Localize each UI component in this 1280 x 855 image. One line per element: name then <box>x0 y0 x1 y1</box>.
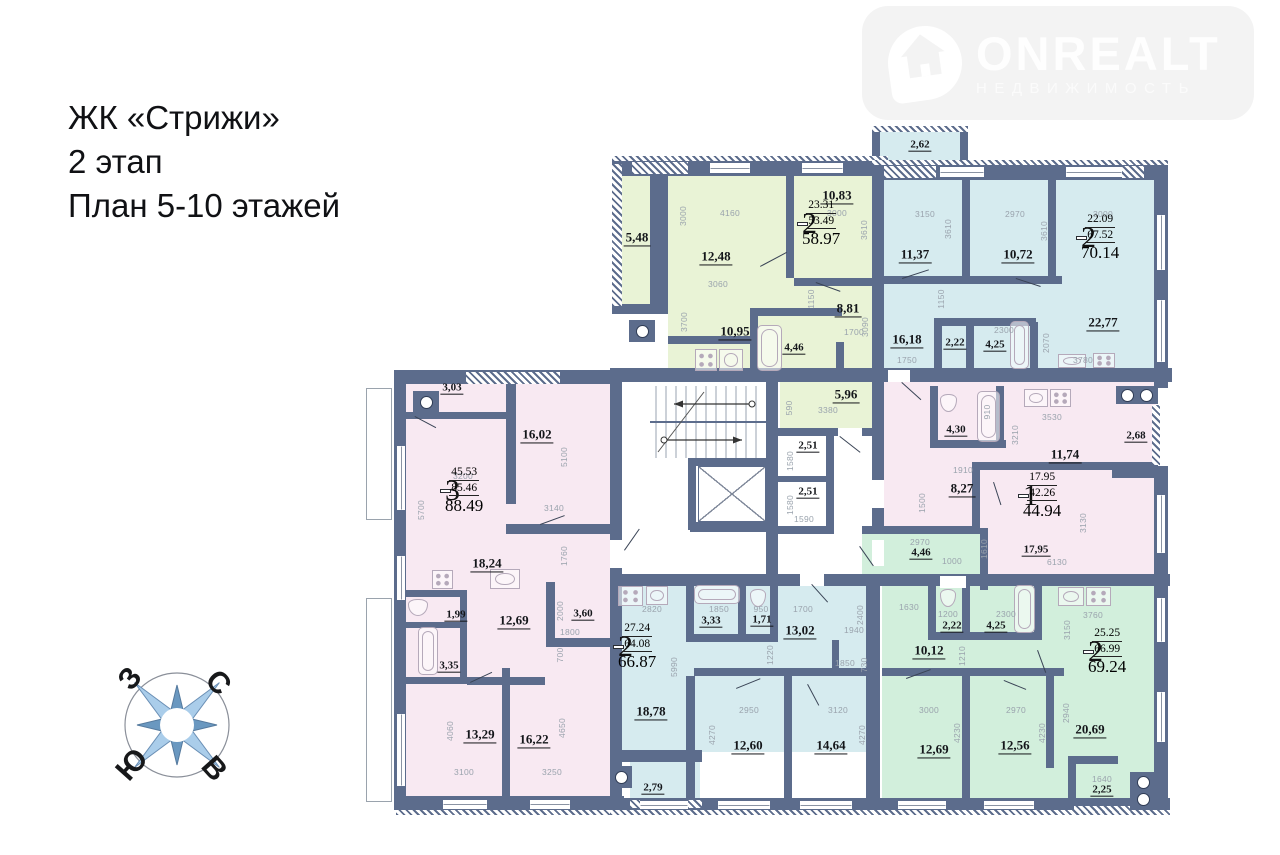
wall <box>934 322 942 374</box>
wall <box>766 380 778 576</box>
wall <box>836 342 844 376</box>
balcony-rail-hatch <box>884 166 936 178</box>
dimension-label: 2000 <box>555 601 565 621</box>
apartment-area: 85.46 <box>449 481 479 496</box>
sink-icon <box>1058 587 1084 606</box>
wall <box>882 668 1064 676</box>
wall <box>778 476 828 482</box>
dimension-label: 1760 <box>559 546 569 566</box>
wall <box>770 582 778 642</box>
sink-icon <box>490 569 520 589</box>
apartment-spec-box: 227.2464.0866.87 <box>613 645 624 649</box>
room-area-label: 2,62 <box>908 139 931 152</box>
floor-plan-page: 5,4812,4810,8310,958,814,465,962,6211,37… <box>0 0 1280 855</box>
wall <box>688 458 772 466</box>
room-area-label: 2,25 <box>1090 784 1113 797</box>
window <box>1156 215 1166 270</box>
room-area-label: 5,96 <box>833 387 860 403</box>
dimension-label: 2070 <box>1041 333 1051 353</box>
wall <box>688 458 696 530</box>
room-area-label: 12,69 <box>917 742 950 758</box>
wall <box>610 750 702 762</box>
living-area: 23.31 <box>806 198 836 213</box>
dimension-label: 3760 <box>1083 610 1103 620</box>
dimension-label: 3610 <box>943 219 953 239</box>
dimension-label: 1210 <box>957 646 967 666</box>
dimension-label: 950 <box>753 604 768 614</box>
wall <box>650 166 668 314</box>
complex-name: ЖК «Стрижи» <box>68 96 340 140</box>
balcony-rail-hatch <box>1152 405 1160 465</box>
dimension-label: 1220 <box>765 645 775 665</box>
dimension-label: 1640 <box>1092 774 1112 784</box>
dimension-label: 3130 <box>1078 513 1088 533</box>
wall <box>686 676 695 798</box>
room-area-label: 4,25 <box>983 339 1006 352</box>
room-area-label: 4,30 <box>944 424 967 437</box>
wall <box>394 796 624 810</box>
dimension-label: 3150 <box>1062 620 1072 640</box>
staircase-graphic <box>650 386 766 458</box>
room-area-label: 2,79 <box>641 782 664 795</box>
vent-fan-icon <box>1140 389 1153 402</box>
dimension-label: 1800 <box>560 627 580 637</box>
window <box>984 800 1034 810</box>
staircase <box>650 386 766 458</box>
dimension-label: 1850 <box>835 658 855 668</box>
door-opening <box>838 428 862 436</box>
dimension-label: 3140 <box>544 503 564 513</box>
door-opening <box>872 480 884 508</box>
dimension-label: 3060 <box>708 279 728 289</box>
apartment-spec-box: 117.9542.2644.94 <box>1018 494 1029 498</box>
room-area-label: 18,78 <box>634 704 667 720</box>
wall <box>884 276 1062 284</box>
room-area-label: 3,33 <box>699 615 722 628</box>
wall <box>826 436 834 534</box>
window <box>898 800 946 810</box>
wall <box>930 386 938 448</box>
apartment-area: 66.99 <box>1092 642 1122 657</box>
total-area: 66.87 <box>618 652 656 672</box>
tub-icon <box>418 627 438 675</box>
dimension-label: 2400 <box>855 605 865 625</box>
dimension-label: 3530 <box>1042 412 1062 422</box>
room-area-label: 2,22 <box>940 620 963 633</box>
vent-fan-icon <box>1137 793 1150 806</box>
logo-subtitle: НЕДВИЖИМОСТЬ <box>976 80 1221 97</box>
balcony-rail-hatch <box>632 162 688 174</box>
room-area-label: 13,29 <box>463 727 496 743</box>
room-area-label: 22,77 <box>1086 315 1119 331</box>
room-area-label: 10,72 <box>1001 247 1034 263</box>
room-area-label: 1,99 <box>444 609 467 622</box>
door-leaf <box>624 529 640 551</box>
window <box>718 800 770 810</box>
stove-icon <box>1093 353 1115 368</box>
sink-icon <box>646 586 668 605</box>
vent-shaft-icon <box>413 391 439 413</box>
vent-shaft-icon <box>610 766 632 788</box>
total-area: 58.97 <box>802 229 840 249</box>
door-leaf <box>839 436 860 453</box>
door-opening <box>940 576 966 588</box>
dimension-label: 3000 <box>678 206 688 226</box>
window <box>443 799 487 810</box>
dimension-label: 5990 <box>669 657 679 677</box>
living-area: 27.24 <box>622 621 652 636</box>
dimension-label: 4060 <box>445 721 455 741</box>
apartment-area: 42.26 <box>1027 486 1057 501</box>
dimension-label: 590 <box>784 400 794 415</box>
vent-fan-icon <box>420 396 433 409</box>
room-area-label: 2,51 <box>796 440 819 453</box>
room-area-label: 5,48 <box>624 230 651 246</box>
page-title: ЖК «Стрижи» 2 этап План 5-10 этажей <box>68 96 340 229</box>
stove-icon <box>695 349 717 371</box>
stage-label: 2 этап <box>68 140 340 184</box>
window <box>710 162 750 174</box>
total-area: 69.24 <box>1088 657 1126 677</box>
wall <box>966 322 974 374</box>
room-area-label: 12,56 <box>998 738 1031 754</box>
dimension-label: 3120 <box>828 705 848 715</box>
tub-icon <box>694 585 740 604</box>
elevator-shaft <box>698 466 766 522</box>
room-area-label: 2,51 <box>796 486 819 499</box>
room-area-label: 1,71 <box>750 614 773 627</box>
dimension-label: 1580 <box>785 451 795 471</box>
wall <box>694 668 866 676</box>
window <box>1156 495 1166 553</box>
window <box>940 166 984 178</box>
dimension-label: 730 <box>859 657 869 672</box>
dimension-label: 2940 <box>1061 703 1071 723</box>
dimension-label: 1590 <box>794 514 814 524</box>
apartment-area: 53.49 <box>806 214 836 229</box>
window <box>1156 692 1166 742</box>
compass-rose: З С Ю В <box>103 648 253 808</box>
wall <box>1112 465 1158 478</box>
dimension-label: 3000 <box>919 705 939 715</box>
window <box>1156 300 1166 362</box>
window <box>640 800 688 810</box>
wall <box>1048 178 1056 280</box>
dimension-label: 6130 <box>1047 557 1067 567</box>
dimension-label: 1910 <box>953 465 973 475</box>
wall <box>546 582 555 640</box>
room-area-label: 11,37 <box>899 247 932 263</box>
dimension-label: 3780 <box>1073 355 1093 365</box>
apartment-spec-box: 225.2566.9969.24 <box>1083 650 1094 654</box>
wall <box>610 574 1170 586</box>
dimension-label: 3090 <box>860 317 870 337</box>
door-opening <box>888 370 910 382</box>
wall <box>1030 322 1038 374</box>
dimension-label: 3700 <box>679 312 689 332</box>
dimension-label: 1940 <box>844 625 864 635</box>
vent-shaft-icon <box>1116 386 1158 404</box>
room-area-label: 13,02 <box>783 623 816 639</box>
dimension-label: 4160 <box>720 208 740 218</box>
room-area-label: 18,24 <box>470 556 503 572</box>
room-area-label: 4,46 <box>909 547 932 560</box>
vent-fan-icon <box>1121 389 1134 402</box>
room-area-label: 2,68 <box>1124 430 1147 443</box>
wall <box>686 634 776 642</box>
living-area: 22.09 <box>1085 212 1115 227</box>
dimension-label: 4230 <box>952 723 962 743</box>
apartment-area: 67.52 <box>1085 228 1115 243</box>
room-area-label: 8,27 <box>949 481 976 497</box>
vent-fan-icon <box>615 771 628 784</box>
wall <box>962 676 970 798</box>
dimension-label: 4270 <box>857 725 867 745</box>
outer-balcony <box>366 388 392 520</box>
sink-icon <box>1024 389 1048 407</box>
wall <box>928 632 1040 640</box>
tub-icon <box>757 325 782 371</box>
room-area-label: 14,64 <box>814 738 847 754</box>
location-pin-house-icon <box>883 21 967 105</box>
vent-shaft-icon <box>629 320 655 342</box>
dimension-label: 1200 <box>938 609 958 619</box>
balcony-rail-hatch <box>612 156 888 161</box>
dimension-label: 1580 <box>785 495 795 515</box>
dimension-label: 1150 <box>806 289 816 308</box>
wall <box>502 668 510 798</box>
vent-fan-icon <box>636 325 649 338</box>
dimension-label: 1700 <box>793 604 813 614</box>
dimension-label: 2820 <box>642 604 662 614</box>
wall <box>962 178 970 280</box>
balcony-rail-hatch <box>466 372 560 384</box>
dimension-label: 910 <box>982 404 992 419</box>
dimension-label: 2970 <box>1005 209 1025 219</box>
room-area-label: 12,69 <box>497 613 530 629</box>
wall <box>404 590 466 597</box>
dimension-label: 1000 <box>942 556 962 566</box>
dimension-label: 4270 <box>707 725 717 745</box>
dimension-label: 1610 <box>979 539 989 559</box>
dimension-label: 5100 <box>559 447 569 467</box>
room-area-label: 3,35 <box>437 660 460 673</box>
dimension-label: 3610 <box>1039 221 1049 241</box>
window <box>396 714 406 786</box>
apartment-spec-box: 222.0967.5270.14 <box>1076 236 1087 240</box>
wall <box>794 278 876 286</box>
dimension-label: 1750 <box>897 355 917 365</box>
living-area: 45.53 <box>449 465 479 480</box>
room-area-label: 2,22 <box>943 337 966 350</box>
balcony-rail-hatch <box>1074 806 1134 812</box>
balcony-rail-hatch <box>612 164 622 306</box>
room-area-label: 4,46 <box>782 342 805 355</box>
dimension-label: 700 <box>555 647 565 662</box>
room-area-label: 12,48 <box>699 249 732 265</box>
dimension-label: 3100 <box>454 767 474 777</box>
room-area-label: 20,69 <box>1073 722 1106 738</box>
room-area-label: 3,03 <box>440 382 463 395</box>
room-area-label: 16,22 <box>517 732 550 748</box>
apartment-spec-box: 345.5385.4688.49 <box>440 489 451 493</box>
window <box>802 162 843 174</box>
window <box>396 446 406 510</box>
dimension-label: 1150 <box>936 289 946 308</box>
wall <box>506 382 516 504</box>
room-area-label: 16,02 <box>520 427 553 443</box>
living-area: 25.25 <box>1092 626 1122 641</box>
wall <box>404 677 466 684</box>
dimension-label: 4230 <box>1037 723 1047 743</box>
total-area: 70.14 <box>1081 243 1119 263</box>
wall <box>972 462 980 534</box>
wall <box>872 164 884 382</box>
window <box>1156 598 1166 642</box>
wall <box>866 574 880 810</box>
dimension-label: 4650 <box>557 718 567 738</box>
sink-icon <box>719 349 743 371</box>
total-area: 88.49 <box>445 496 483 516</box>
dimension-label: 3150 <box>915 209 935 219</box>
stove-icon <box>1086 587 1111 606</box>
apartment-spec-box: 223.3153.4958.97 <box>797 222 808 226</box>
stove-icon <box>1050 389 1071 407</box>
onrealt-watermark: ONREALT НЕДВИЖИМОСТЬ <box>862 6 1254 120</box>
wall <box>506 524 622 534</box>
wall <box>784 676 792 798</box>
dimension-label: 1500 <box>917 493 927 513</box>
dimension-label: 3610 <box>859 220 869 240</box>
room-area-label: 11,74 <box>1049 447 1082 463</box>
dimension-label: 3380 <box>818 405 838 415</box>
dimension-label: 2300 <box>994 325 1014 335</box>
room-area-label: 10,12 <box>912 643 945 659</box>
wall <box>546 638 622 647</box>
window <box>800 800 852 810</box>
room-area-label: 10,95 <box>718 324 751 340</box>
balcony-rail-hatch <box>872 160 1168 165</box>
wall <box>862 526 980 534</box>
wall <box>1068 756 1076 810</box>
apartment-area: 64.08 <box>622 637 652 652</box>
balcony-rail-hatch <box>872 126 968 132</box>
room-area-label: 8,81 <box>835 301 862 317</box>
vent-fan-icon <box>1137 776 1150 789</box>
vent-shaft-icon <box>1130 772 1156 810</box>
dimension-label: 2970 <box>1006 705 1026 715</box>
wall <box>872 380 884 532</box>
room-area-label: 17,95 <box>1022 544 1051 557</box>
wall <box>686 582 694 642</box>
dimension-label: 1630 <box>899 602 919 612</box>
dimension-label: 2950 <box>739 705 759 715</box>
wall <box>1046 676 1054 768</box>
door-opening <box>872 540 884 566</box>
room-area-label: 16,18 <box>890 332 923 348</box>
dimension-label: 2300 <box>996 609 1016 619</box>
wall <box>778 526 828 534</box>
room-area-label: 12,60 <box>731 738 764 754</box>
tub-icon <box>1014 585 1035 633</box>
living-area: 17.95 <box>1027 470 1057 485</box>
dimension-label: 3250 <box>542 767 562 777</box>
room-area-label: 4,25 <box>984 620 1007 633</box>
window <box>530 799 570 810</box>
dimension-label: 5700 <box>416 500 426 520</box>
wall <box>690 522 778 532</box>
stove-icon <box>432 570 453 589</box>
room-area-label: 3,60 <box>571 608 594 621</box>
stove-icon <box>618 586 643 606</box>
dimension-label: 2970 <box>910 537 930 547</box>
wall <box>786 166 794 278</box>
door-opening <box>610 540 622 568</box>
dimension-label: 1850 <box>709 604 729 614</box>
dimension-label: 3210 <box>1010 425 1020 445</box>
window <box>1066 166 1122 178</box>
floors-label: План 5-10 этажей <box>68 184 340 228</box>
wall <box>750 308 842 316</box>
logo-name: ONREALT <box>976 29 1221 78</box>
outer-balcony <box>366 598 392 802</box>
window <box>396 556 406 600</box>
wall <box>460 590 467 684</box>
total-area: 44.94 <box>1023 501 1061 521</box>
